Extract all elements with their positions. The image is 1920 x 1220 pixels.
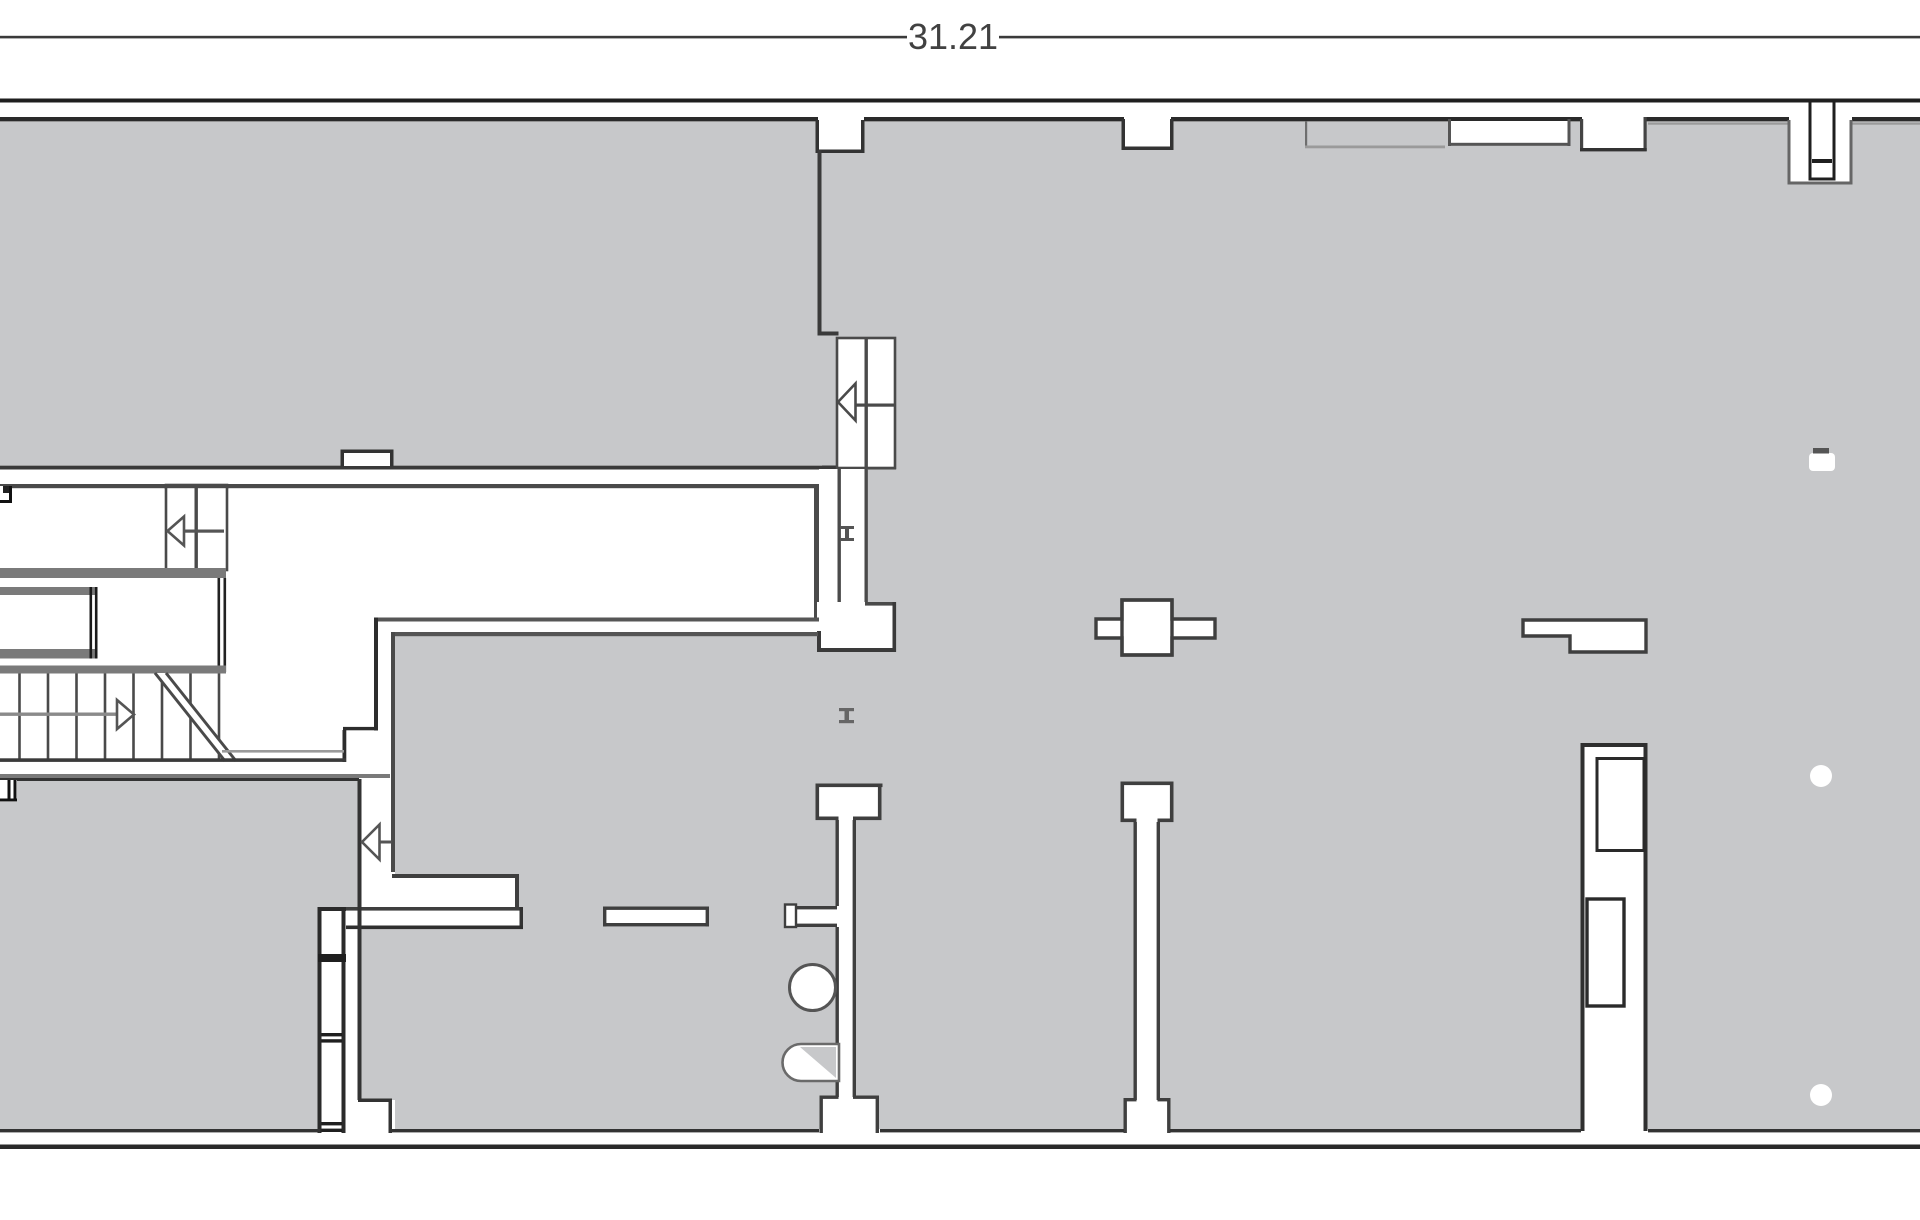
svg-text:31.21: 31.21	[908, 16, 998, 57]
